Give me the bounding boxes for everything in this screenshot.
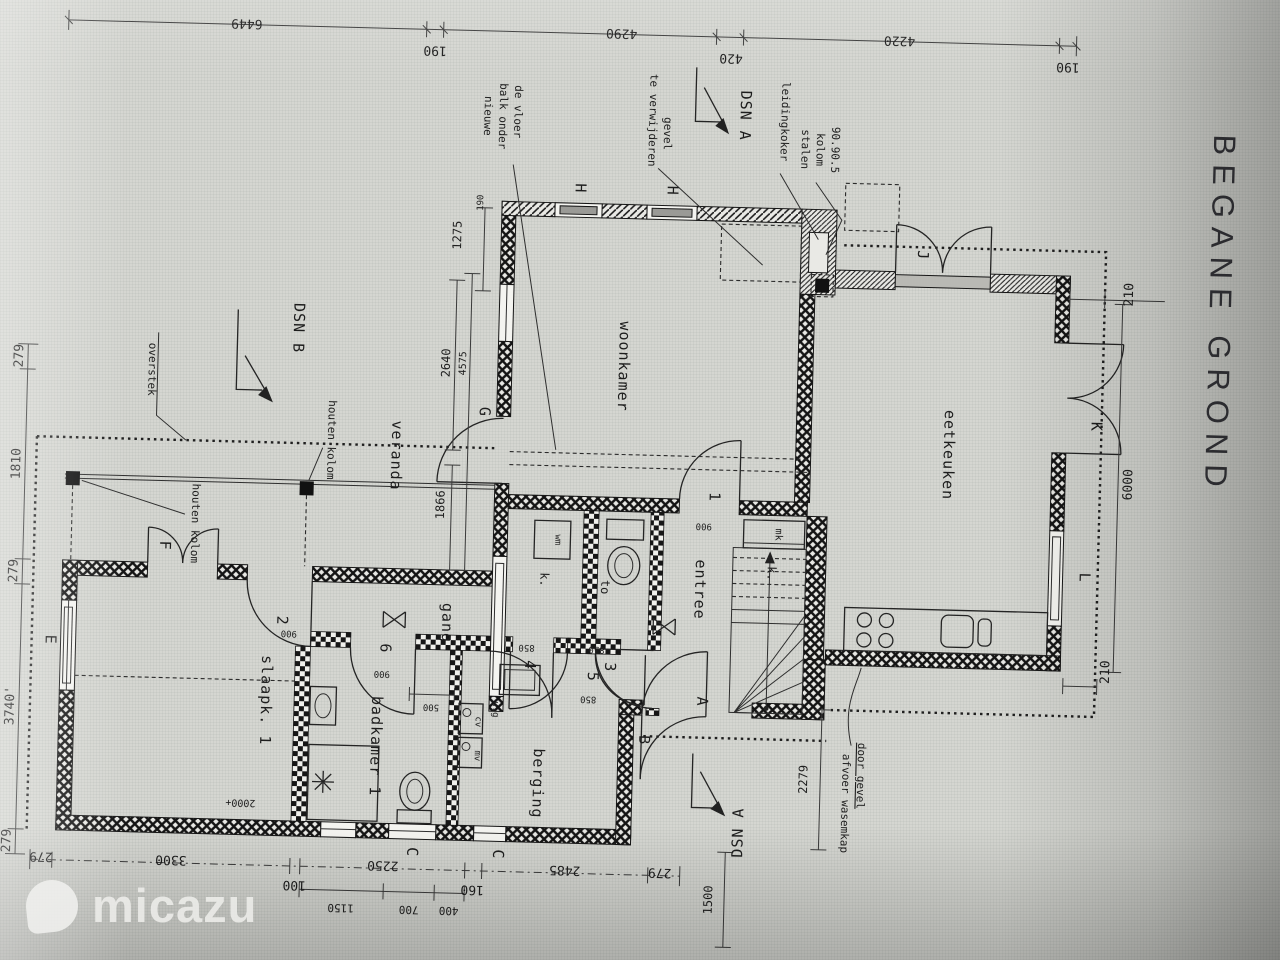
micazu-logo-text: micazu [92, 878, 257, 933]
houten-kolom-2 [299, 481, 313, 495]
marker-door-1: 1 [705, 492, 723, 502]
label-kast-2: k. [764, 566, 778, 581]
dim-left-1810: 1810 [9, 448, 25, 480]
dim-900-d1: 900 [696, 520, 713, 530]
toilet-to-room [605, 519, 644, 585]
dim-bot-160: 160 [460, 881, 484, 897]
marker-F: F [156, 540, 174, 550]
window-H1 [555, 203, 602, 218]
note-nieuwe-balk: nieuwe balk onder de vloer [481, 83, 526, 151]
door-2 [246, 580, 313, 647]
label-ug: u.g [490, 701, 500, 718]
note-houten-kolom-1: houten kolom [188, 483, 203, 563]
overstek-dashed-outline [27, 162, 1108, 860]
svg-text:nieuwe: nieuwe [481, 96, 495, 136]
exterior-walls [56, 190, 1072, 856]
dim-210-top: 210 [1122, 283, 1138, 307]
label-dsn-b: DSN B [289, 303, 308, 354]
dim-850-d3: 850 [588, 644, 605, 654]
svg-text:afvoer wasemkap: afvoer wasemkap [837, 754, 853, 854]
svg-text:stalen: stalen [798, 129, 812, 169]
marker-door-6: 6 [376, 643, 394, 653]
dim-850-d5: 850 [580, 694, 597, 704]
window-west-1 [499, 284, 514, 341]
label-dsn-a-top: DSN A [736, 90, 755, 141]
dim-bot-2250: 2250 [367, 857, 399, 873]
veranda-edge [64, 441, 496, 522]
dim-left-279b: 279 [6, 559, 22, 583]
marker-L: L [1075, 572, 1093, 582]
door-B [640, 715, 706, 781]
dim-bot-100: 100 [282, 877, 306, 893]
window-E [59, 600, 76, 690]
dim-1275: 1275 [450, 221, 465, 250]
marker-E: E [41, 634, 59, 644]
washing-machine [534, 520, 571, 559]
marker-G: G [476, 407, 494, 417]
micazu-logo-icon [23, 877, 80, 934]
door-closer-symbols [383, 611, 675, 635]
dim-top-4220: 4220 [884, 32, 916, 48]
window-H2 [647, 205, 697, 220]
label-mv: mv [472, 750, 482, 761]
door-K [1066, 343, 1124, 454]
fixtures [307, 509, 1050, 840]
room-label-entree: entree [690, 559, 710, 620]
dim-4575: 4575 [458, 351, 470, 375]
dsn-a-bottom-arrow [691, 753, 727, 816]
label-mk: mk [772, 528, 783, 540]
label-cv: cv [472, 716, 482, 727]
dim-210-bottom: 210 [1098, 660, 1114, 684]
watermark: micazu [26, 878, 257, 933]
svg-text:te verwijderen: te verwijderen [645, 74, 660, 167]
dimension-lines [3, 9, 1172, 959]
dim-left-279c: 279 [0, 829, 15, 853]
marker-C1: C [403, 847, 421, 857]
marker-door-3: 3 [601, 662, 619, 672]
marker-K: K [1087, 422, 1105, 432]
svg-text:de vloer: de vloer [511, 85, 525, 139]
dsn-b-arrow [236, 309, 275, 402]
marker-door-4: 4 [521, 660, 539, 670]
hob [857, 613, 894, 648]
dim-2279: 2279 [796, 765, 811, 794]
dim-500: 500 [423, 701, 440, 711]
room-label-slaapkamer: slaapk. 1 [256, 655, 276, 746]
marker-H1: H [571, 183, 589, 193]
note-stalen-kolom: stalen kolom 90.90.5 [798, 126, 842, 173]
dim-850-d4: 850 [518, 642, 535, 652]
marker-door-5: 5 [584, 672, 602, 682]
dim-900-d2: 900 [281, 628, 298, 638]
label-wm: wm [552, 534, 562, 545]
svg-text:door gevel: door gevel [853, 743, 868, 810]
label-toilet: to [598, 580, 612, 595]
dsn-a-top-arrow [695, 67, 731, 134]
floorplan-drawing: woonkamer eetkeuken veranda gang entree … [0, 0, 1280, 960]
dim-left-279a: 279 [12, 344, 28, 368]
windows [56, 190, 1072, 856]
room-label-woonkamer: woonkamer [614, 321, 634, 412]
window-L [1047, 531, 1063, 626]
sink [941, 615, 974, 648]
dim-1866: 1866 [433, 490, 448, 519]
svg-text:90.90.5: 90.90.5 [828, 127, 842, 174]
dim-top-190a: 190 [423, 42, 447, 58]
construction-dashes [73, 153, 874, 745]
svg-text:gevel: gevel [661, 117, 675, 150]
toilet-bathroom [397, 772, 432, 824]
kitchen-counter [844, 607, 1048, 655]
wall-to-be-removed [720, 224, 801, 282]
door-J [896, 225, 992, 274]
room-label-gang: gang [438, 603, 457, 644]
window-C3 [473, 826, 505, 842]
marker-A: A [693, 696, 711, 706]
washbasin [309, 686, 336, 725]
label-kast-1: k. [537, 572, 551, 587]
marker-H2: H [663, 186, 681, 196]
note-overstek-leader [156, 332, 189, 440]
dim-sub-400: 400 [439, 904, 459, 918]
dim-top-4290: 4290 [606, 25, 638, 41]
dim-2000-level: 2000+ [225, 796, 255, 808]
window-C2 [389, 824, 436, 840]
svg-text:kolom: kolom [813, 133, 827, 167]
note-leidingkoker: leidingkoker [777, 82, 792, 162]
dim-bot-2485: 2485 [549, 862, 581, 878]
door-A [642, 650, 708, 717]
dim-right [1060, 291, 1166, 696]
dim-bot-279a: 279 [29, 848, 53, 864]
dim-bot-279b: 279 [648, 864, 672, 880]
dim-sub-700: 700 [399, 903, 419, 917]
dim-left-3740: 3740' [2, 686, 18, 726]
room-label-badkamer: badkamer 1 [366, 696, 387, 797]
dim-top [65, 10, 1081, 57]
window-C1 [321, 822, 356, 838]
drawing-title: BEGANE GROND [1198, 134, 1242, 496]
window-J-sill [895, 275, 990, 289]
marker-B: B [635, 735, 653, 745]
houten-kolom-1 [66, 471, 80, 485]
room-label-berging: berging [528, 748, 548, 819]
marker-C2: C [489, 849, 507, 859]
dim-top-420: 420 [719, 50, 743, 66]
dim-2640: 2640 [439, 348, 454, 377]
dim-top-190b: 190 [1056, 59, 1080, 75]
room-label-veranda: veranda [387, 420, 407, 491]
marker-J: J [914, 250, 932, 260]
note-te-verwijderen: te verwijderen gevel [645, 74, 675, 167]
dim-top-6449: 6449 [231, 15, 263, 31]
note-houten-kolom-2: houten kolom [324, 400, 339, 480]
svg-text:balk onder: balk onder [496, 83, 511, 150]
dim-900-d6: 900 [374, 668, 391, 678]
label-dsn-a-bottom: DSN A [728, 807, 747, 858]
room-label-eetkeuken: eetkeuken [939, 410, 959, 501]
dim-6000: 6000 [1121, 469, 1137, 501]
dim-sub-1150: 1150 [327, 901, 354, 915]
dim-190-small: 190 [476, 194, 486, 211]
window-west-2 [489, 556, 507, 696]
dim-bot-3300: 3300 [155, 851, 187, 867]
dim-1500: 1500 [701, 885, 716, 914]
marker-door-2: 2 [273, 615, 291, 625]
note-afvoer-wasemkap: afvoer wasemkap door gevel [837, 742, 868, 853]
